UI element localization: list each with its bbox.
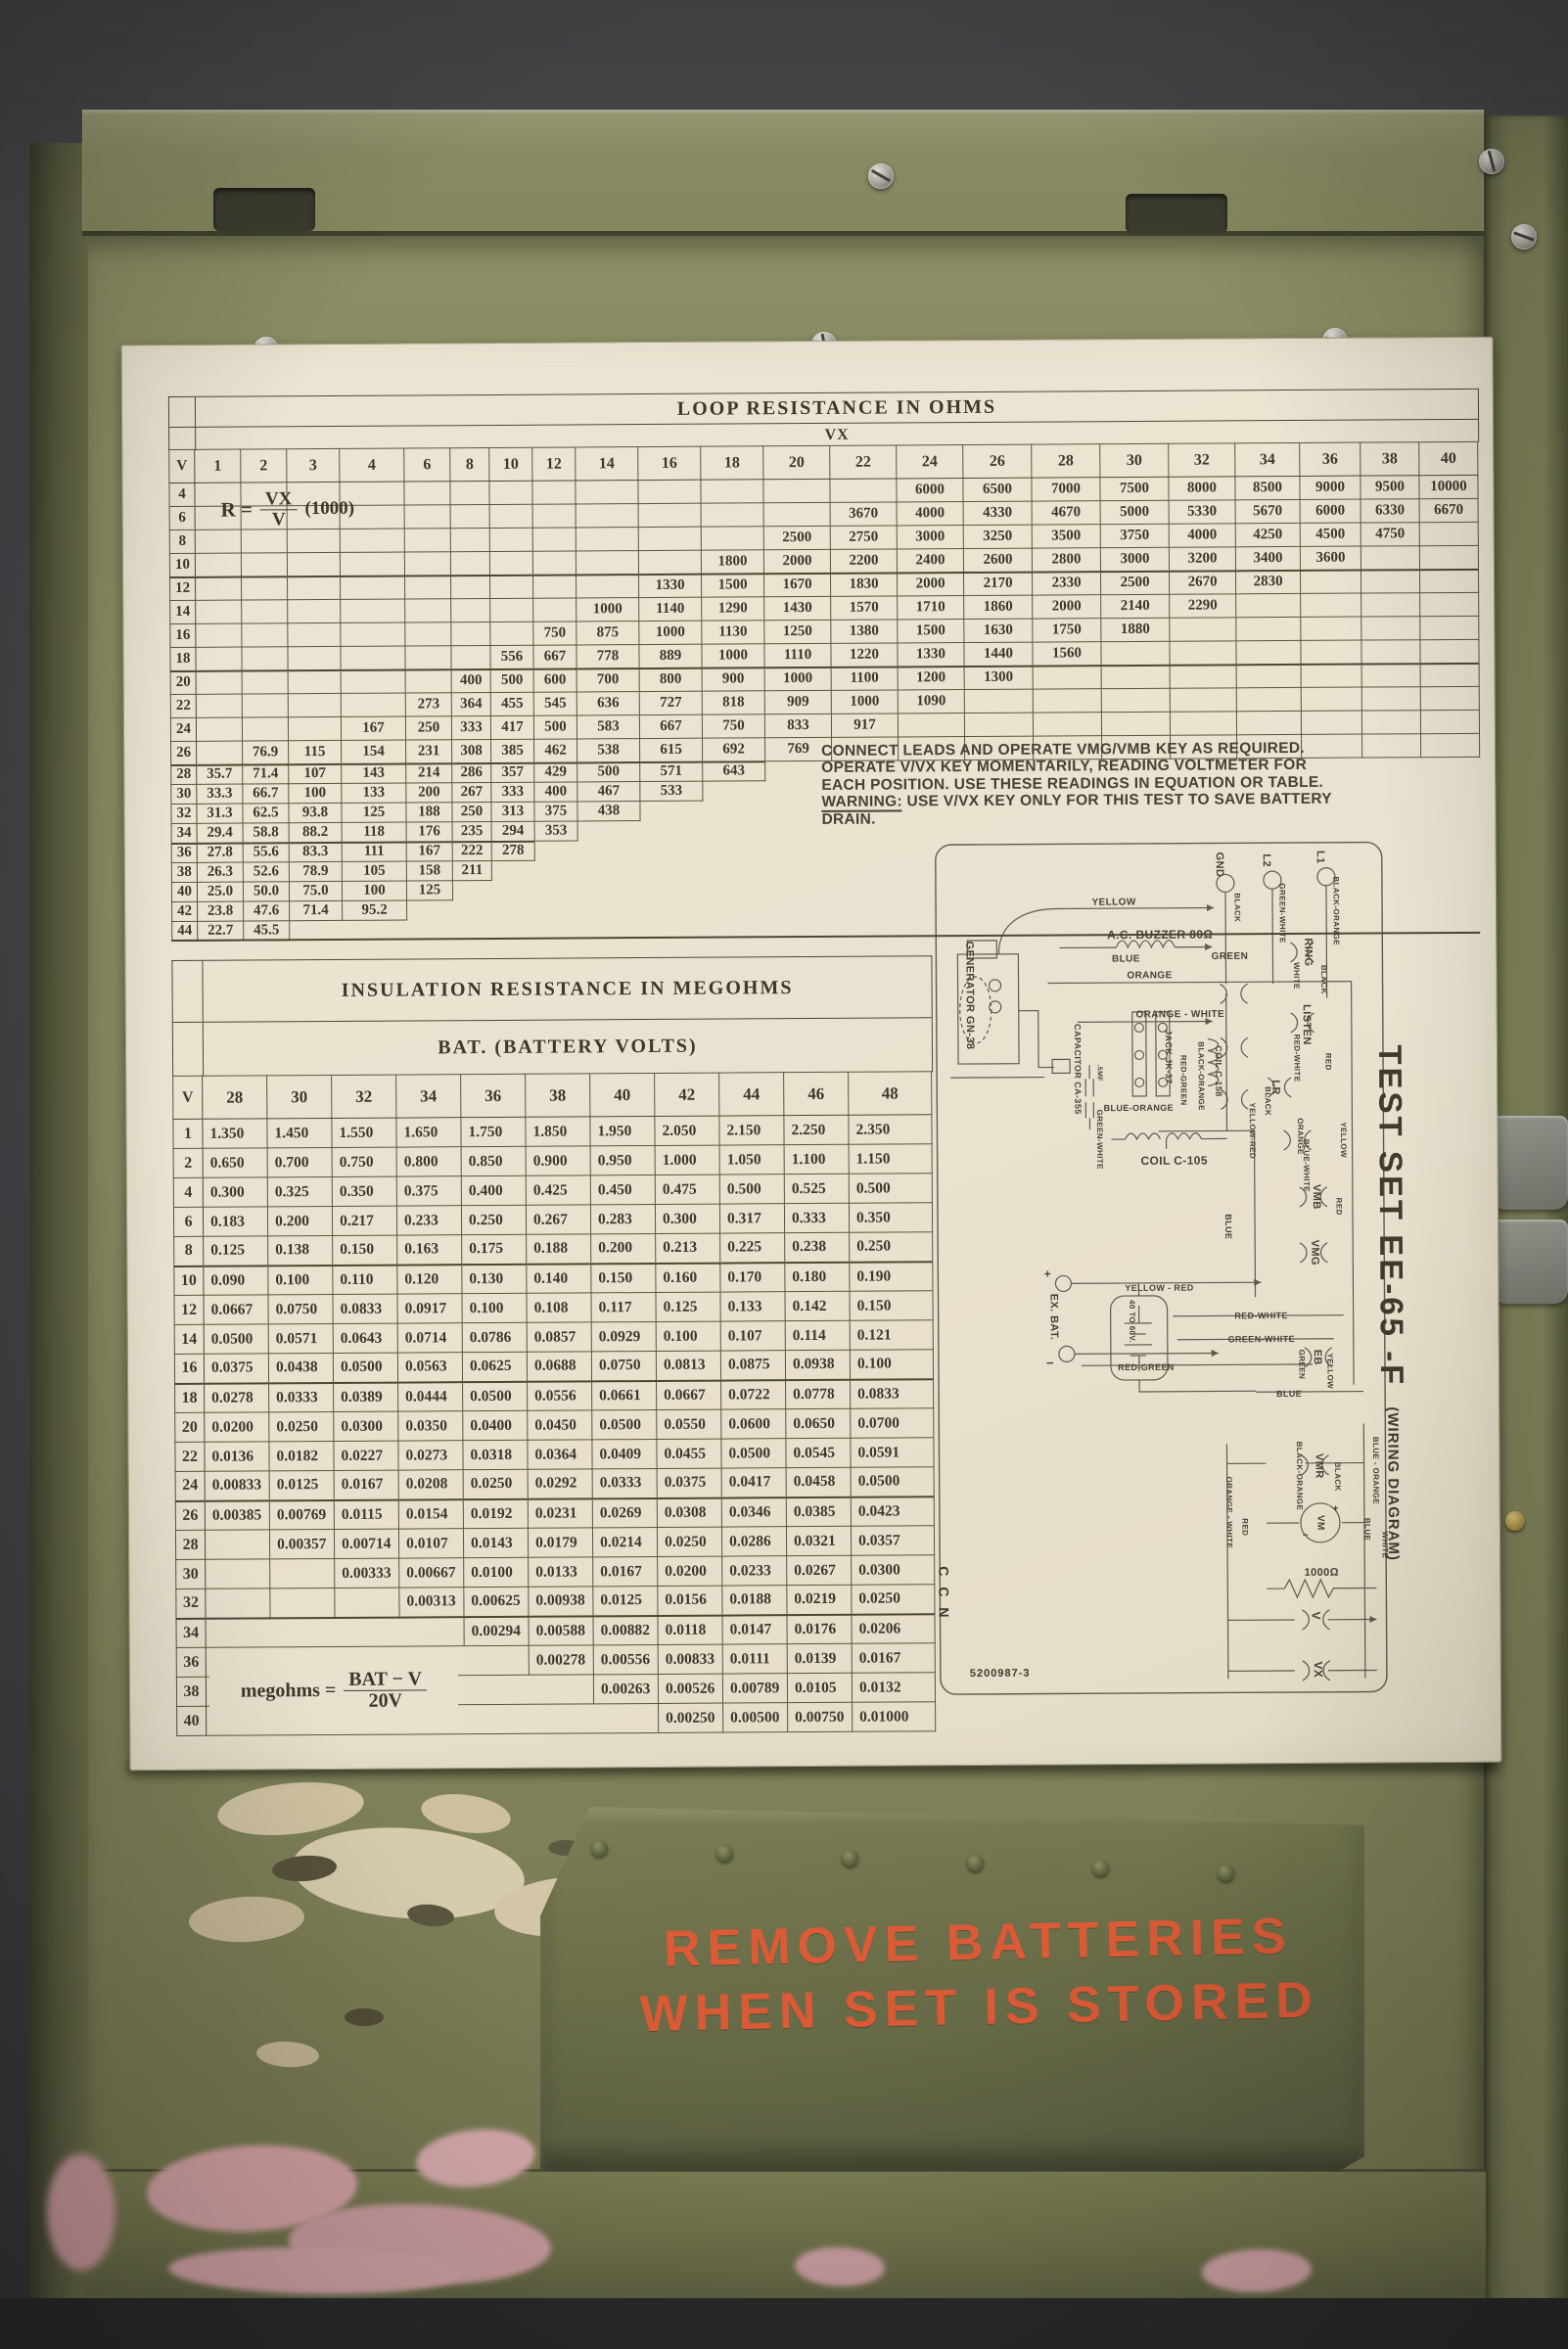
insulation-cell: 0.450 (590, 1174, 655, 1204)
insulation-cell: 0.00833 (658, 1644, 722, 1674)
loop-cell: 76.9 (243, 741, 289, 764)
loop-cell (287, 552, 340, 576)
latch-hardware (1492, 1116, 1568, 1210)
wire-label: JACK JK-37 (1164, 1030, 1174, 1084)
loop-cell (1301, 640, 1361, 664)
wire-label: VMG (1309, 1240, 1320, 1266)
insulation-cell: 0.0208 (398, 1470, 463, 1499)
loop-cell (404, 505, 450, 529)
loop-cell (532, 481, 576, 504)
loop-cell: 313 (491, 802, 534, 821)
case-bottom-shadow (0, 2298, 1568, 2349)
insulation-cell: 0.0563 (397, 1353, 462, 1382)
loop-cell: 22.7 (198, 921, 244, 941)
insulation-cell: 0.0500 (333, 1353, 397, 1382)
loop-cell: 167 (406, 842, 452, 861)
loop-cell (340, 552, 404, 576)
col-header: 3 (287, 448, 340, 482)
row-label: 18 (175, 1383, 205, 1412)
corner-label: V (169, 449, 195, 483)
paint-chip (47, 2153, 115, 2271)
loop-cell: 500 (533, 715, 576, 739)
insulation-title-band: INSULATION RESISTANCE IN MEGOHMS BAT. (B… (171, 955, 933, 1077)
loop-cell (405, 646, 451, 669)
loop-cell (241, 530, 287, 553)
loop-cell: 6670 (1419, 498, 1478, 522)
loop-cell (1170, 618, 1236, 641)
insulation-cell: 0.0250 (657, 1527, 721, 1556)
insulation-table-title: INSULATION RESISTANCE IN MEGOHMS (203, 956, 931, 1022)
insulation-cell: 1.550 (332, 1118, 396, 1147)
loop-cell (1301, 687, 1361, 711)
loop-cell: 900 (702, 668, 764, 691)
wire-label: − (1046, 1356, 1054, 1370)
insulation-cell: 1.450 (267, 1118, 332, 1147)
loop-cell: 214 (406, 763, 452, 783)
loop-cell: 500 (577, 762, 640, 782)
table-row: 340.002940.005880.008820.01180.01470.017… (176, 1614, 935, 1648)
loop-cell (1170, 688, 1236, 712)
rivet (842, 1850, 858, 1866)
insulation-cell (335, 1588, 399, 1617)
loop-cell: 364 (451, 692, 490, 715)
row-label: 30 (171, 784, 197, 804)
loop-cell (763, 479, 830, 502)
insulation-cell: 0.0321 (786, 1526, 851, 1555)
insulation-cell: 2.150 (719, 1116, 784, 1145)
col-header: 2 (241, 449, 287, 483)
loop-cell: 1500 (898, 620, 964, 643)
insulation-cell: 0.0214 (592, 1527, 657, 1556)
insulation-cell: 0.160 (656, 1263, 720, 1292)
table-row: 200.02000.02500.03000.03500.04000.04500.… (175, 1408, 934, 1443)
wire-label: L2 (1261, 853, 1272, 867)
insulation-cell: 0.0125 (593, 1586, 658, 1615)
insulation-cell: 0.00278 (529, 1645, 593, 1675)
loop-cell: 438 (577, 802, 640, 821)
loop-cell: 2290 (1170, 594, 1236, 618)
loop-cell: 1220 (831, 643, 898, 667)
insulation-cell: 0.200 (267, 1206, 332, 1235)
row-label: 12 (174, 1295, 204, 1324)
row-label: 20 (170, 670, 196, 694)
loop-cell (638, 503, 701, 527)
loop-cell (1301, 664, 1361, 687)
loop-cell: 250 (452, 802, 491, 821)
insulation-cell: 0.170 (720, 1263, 785, 1292)
insulation-cell: 0.0308 (657, 1497, 721, 1527)
col-header: 48 (849, 1072, 932, 1116)
loop-cell: 188 (406, 803, 452, 822)
loop-cell (288, 716, 341, 740)
wire-label: VM (1314, 1515, 1325, 1531)
band-spacer (172, 961, 203, 1022)
row-label: 32 (176, 1589, 206, 1618)
insulation-cell: 0.0250 (269, 1411, 334, 1441)
loop-cell: 125 (406, 881, 452, 900)
wire-label: RED (1334, 1198, 1343, 1216)
loop-cell (341, 622, 405, 646)
wire-label: YELLOW (1091, 897, 1135, 907)
col-header: 8 (450, 447, 489, 481)
insulation-cell: 0.0700 (851, 1408, 934, 1439)
insulation-cell: 0.0136 (205, 1442, 269, 1471)
insulation-cell: 0.700 (267, 1147, 332, 1176)
loop-cell (1420, 616, 1479, 639)
insulation-cell: 0.175 (462, 1234, 527, 1264)
insulation-cell: 0.0132 (852, 1673, 935, 1703)
loop-cell: 294 (491, 821, 534, 841)
loop-cell (1420, 592, 1479, 616)
loop-cell (405, 576, 451, 599)
col-header: 14 (576, 447, 638, 481)
loop-cell (830, 479, 897, 502)
row-label: 18 (170, 647, 196, 670)
wire-label: YELLOW-RED (1248, 1102, 1257, 1159)
col-header: 6 (404, 448, 450, 482)
insulation-cell: 0.0278 (205, 1383, 269, 1412)
insulation-cell: 0.163 (397, 1235, 462, 1265)
insulation-cell: 0.217 (332, 1206, 396, 1235)
insulation-cell: 0.0722 (721, 1380, 786, 1409)
insulation-cell: 0.0661 (592, 1380, 657, 1409)
insulation-cell: 0.283 (590, 1204, 655, 1233)
loop-cell: 583 (576, 715, 639, 739)
loop-cell: 115 (289, 740, 342, 763)
loop-cell: 5000 (1100, 500, 1169, 524)
loop-cell: 889 (639, 644, 702, 668)
loop-cell: 4750 (1360, 523, 1419, 546)
loop-cell: 2830 (1235, 570, 1300, 593)
loop-cell: 1090 (898, 690, 964, 714)
insulation-cell: 0.0643 (333, 1323, 397, 1353)
insulation-cell: 0.117 (591, 1292, 656, 1321)
wire-label: BLACK-ORANGE (1196, 1041, 1205, 1111)
insulation-cell: 1.050 (719, 1145, 784, 1174)
loop-cell (404, 552, 450, 576)
loop-cell (1419, 545, 1478, 569)
insulation-cell: 0.0714 (397, 1323, 462, 1353)
loop-cell (288, 599, 341, 622)
insulation-header-row: V2830323436384042444648 (173, 1072, 932, 1120)
loop-cell: 1570 (831, 596, 898, 620)
col-header: 30 (1100, 443, 1169, 477)
insulation-cell: 0.0167 (334, 1470, 398, 1499)
loop-cell: 45.5 (244, 921, 290, 941)
loop-cell: 357 (491, 762, 534, 782)
loop-cell (1033, 666, 1101, 689)
loop-cell (288, 669, 341, 693)
insulation-cell: 0.00833 (205, 1471, 269, 1500)
insulation-cell: 0.100 (656, 1321, 720, 1351)
loop-cell: 533 (640, 781, 703, 801)
loop-cell: 4000 (897, 502, 963, 526)
insulation-cell: 0.0650 (786, 1408, 851, 1438)
col-header: 20 (763, 445, 830, 479)
row-label: 26 (171, 741, 197, 764)
row-label: 24 (170, 717, 196, 741)
loop-cell: 211 (452, 860, 491, 880)
loop-cell: 267 (452, 782, 491, 802)
loop-cell (196, 670, 242, 694)
loop-cell (1420, 710, 1479, 733)
loop-cell: 5330 (1169, 500, 1235, 524)
loop-cell: 1300 (964, 666, 1033, 689)
wire-label: GREEN-WHITE (1277, 883, 1286, 943)
col-header: 18 (701, 446, 763, 480)
loop-cell: 1800 (701, 550, 763, 574)
insulation-cell: 0.300 (655, 1204, 719, 1233)
insulation-cell: 0.0227 (334, 1441, 398, 1470)
table-row: 260.003850.007690.01150.01540.01920.0231… (175, 1497, 934, 1531)
wire-label: + (1044, 1267, 1052, 1281)
loop-cell: 3000 (897, 526, 963, 549)
loop-cell: 6500 (963, 478, 1032, 501)
formula-rhs: (1000) (304, 498, 354, 520)
loop-cell: 167 (341, 716, 405, 740)
wire-label: + (1333, 1503, 1339, 1514)
insulation-cell: 0.100 (850, 1350, 933, 1380)
loop-cell: 1110 (764, 643, 831, 667)
insulation-cell: 0.800 (396, 1147, 461, 1176)
loop-cell: 23.8 (198, 901, 244, 921)
col-header: 34 (1235, 442, 1300, 476)
insulation-cell: 2.050 (655, 1116, 719, 1145)
insulation-cell: 0.350 (332, 1176, 396, 1206)
insulation-cell: 0.0550 (657, 1409, 721, 1439)
loop-cell: 235 (452, 821, 491, 841)
insulation-table-subtitle: BAT. (BATTERY VOLTS) (204, 1018, 932, 1077)
wire-label: WHITE (1292, 962, 1301, 990)
loop-cell: 4330 (963, 501, 1032, 525)
row-label: 12 (170, 576, 196, 600)
loop-cell: 158 (406, 861, 452, 881)
loop-cell (341, 693, 405, 716)
loop-cell: 2670 (1169, 571, 1235, 594)
band-spacer (173, 1023, 204, 1077)
insulation-cell: 0.00769 (269, 1499, 334, 1529)
wire-label: COIL C-105 (1140, 1154, 1208, 1168)
loop-cell: 1670 (764, 573, 831, 596)
insulation-cell: 0.0500 (851, 1467, 934, 1497)
col-header: 36 (1300, 442, 1360, 476)
table-row: 220.01360.01820.02270.02730.03180.03640.… (175, 1438, 934, 1472)
loop-cell: 727 (639, 691, 702, 714)
loop-cell: 429 (534, 762, 577, 782)
insulation-cell: 0.900 (526, 1146, 590, 1175)
col-header: 28 (1032, 444, 1100, 478)
insulation-cell: 0.133 (720, 1292, 785, 1321)
insulation-cell: 0.150 (333, 1235, 397, 1265)
row-label: 14 (174, 1324, 204, 1354)
insulation-cell: 0.0438 (268, 1353, 333, 1382)
loop-cell: 9500 (1360, 476, 1419, 499)
loop-cell: 250 (405, 716, 451, 740)
insulation-cell: 0.0182 (269, 1441, 334, 1470)
insulation-cell: 0.0133 (529, 1557, 593, 1587)
loop-cell: 3400 (1235, 546, 1300, 570)
insulation-cell: 0.0591 (851, 1438, 934, 1468)
row-label: 8 (169, 530, 195, 553)
insulation-cell: 0.138 (268, 1235, 333, 1265)
insulation-cell: 0.0750 (591, 1351, 656, 1380)
loop-cell (532, 504, 576, 528)
row-label: 28 (171, 764, 197, 784)
loop-cell: 2800 (1032, 548, 1100, 572)
loop-cell (1236, 711, 1301, 734)
table-row: 300.003330.006670.01000.01330.01670.0200… (176, 1555, 935, 1589)
loop-cell: 1880 (1101, 618, 1170, 641)
wire-label: RED-GREEN (1179, 1055, 1188, 1106)
wire-label: YELLOW (1339, 1122, 1348, 1158)
insulation-cell: 0.267 (526, 1205, 590, 1234)
loop-cell (638, 550, 701, 574)
loop-cell (1419, 569, 1478, 592)
insulation-cell: 0.0364 (528, 1440, 592, 1469)
insulation-cell: 0.0857 (527, 1322, 591, 1352)
insulation-cell: 0.0147 (722, 1615, 787, 1644)
col-header: 16 (638, 446, 701, 480)
loop-cell: 111 (342, 842, 406, 861)
loop-cell (490, 598, 533, 622)
loop-cell (1361, 687, 1420, 711)
wire-label: BLACK (1233, 893, 1242, 922)
insulation-cell: 0.750 (332, 1147, 396, 1176)
loop-cell (1419, 522, 1478, 545)
loop-cell: 667 (639, 714, 702, 738)
megohms-formula: megohms = BAT − V20V (209, 1648, 459, 1732)
table-row: 60.1830.2000.2170.2330.2500.2670.2830.30… (173, 1203, 932, 1237)
loop-cell: 400 (451, 668, 490, 692)
loop-cell (489, 481, 532, 504)
loop-cell: 8000 (1169, 477, 1235, 500)
loop-cell: 1330 (898, 643, 964, 667)
loop-cell (1361, 664, 1420, 687)
loop-cell: 800 (639, 668, 702, 691)
loop-cell: 778 (576, 645, 639, 668)
row-label: 30 (176, 1559, 206, 1589)
band-spacer (169, 397, 196, 427)
loop-cell (341, 599, 405, 622)
loop-cell: 556 (490, 645, 533, 668)
loop-cell: 100 (342, 881, 406, 900)
loop-cell (489, 528, 532, 551)
loop-cell: 1830 (831, 573, 898, 596)
row-label: 6 (169, 506, 195, 530)
insulation-cell: 1.350 (203, 1119, 267, 1148)
loop-cell (242, 717, 288, 741)
row-label: 34 (171, 823, 197, 843)
loop-cell (451, 645, 490, 668)
insulation-cell: 0.950 (590, 1145, 655, 1174)
col-header: 42 (655, 1073, 719, 1116)
table-row: 280.003570.007140.01070.01430.01790.0214… (175, 1526, 934, 1560)
col-header: 44 (719, 1073, 784, 1116)
case-left-rail (29, 143, 88, 2302)
insulation-cell: 0.00294 (464, 1616, 529, 1645)
loop-cell: 1750 (1033, 619, 1101, 642)
wire-label: GND (1214, 852, 1225, 878)
insulation-cell: 0.0929 (591, 1321, 656, 1351)
loop-cell: 3500 (1032, 525, 1100, 548)
insulation-cell: 0.0188 (722, 1586, 787, 1615)
wire-label: BLACK-ORANGE (1295, 1442, 1304, 1511)
rivet (967, 1855, 984, 1871)
loop-cell (1101, 688, 1170, 712)
insulation-cell: 0.500 (719, 1174, 784, 1204)
loop-cell (1361, 617, 1420, 640)
loop-cell: 231 (406, 740, 452, 763)
insulation-cell: 0.0333 (592, 1468, 657, 1497)
loop-cell (288, 576, 341, 599)
loop-cell: 2000 (1033, 595, 1101, 619)
loop-cell (451, 575, 490, 598)
loop-cell (196, 717, 242, 741)
insulation-cell (270, 1558, 335, 1588)
loop-cell (490, 622, 533, 645)
insulation-cell: 0.0111 (722, 1644, 787, 1674)
insulation-cell: 0.250 (850, 1232, 933, 1263)
wire-label: RING (1302, 938, 1314, 966)
loop-cell: 1630 (964, 619, 1033, 642)
wire-label: GREEN (1212, 951, 1249, 962)
wire-label: BLUE (1362, 1518, 1371, 1541)
wire-label: BLACK (1264, 1086, 1272, 1116)
insulation-cell: 1.950 (590, 1116, 655, 1145)
insulation-cell: 0.0115 (334, 1499, 398, 1529)
loop-cell (196, 694, 242, 717)
insulation-cell: 0.188 (527, 1234, 591, 1264)
insulation-cell: 1.650 (396, 1118, 461, 1147)
loop-cell: 1000 (702, 644, 764, 668)
loop-title-band: LOOP RESISTANCE IN OHMS VX (168, 389, 1479, 450)
loop-cell (288, 693, 341, 716)
insulation-cell (206, 1589, 270, 1618)
wiring-diagram-lines (930, 836, 1436, 1703)
loop-cell: 455 (490, 692, 533, 715)
insulation-cell: 0.0400 (463, 1410, 528, 1440)
loop-cell: 1860 (964, 595, 1033, 619)
loop-cell: 571 (640, 761, 703, 781)
loop-cell (701, 480, 763, 503)
insulation-cell: 0.00588 (529, 1616, 593, 1645)
loop-cell: 375 (534, 802, 577, 821)
wire-label: ORANGE - WHITE (1224, 1477, 1233, 1549)
wire-label: VMR (1314, 1453, 1325, 1479)
loop-cell (1170, 712, 1236, 735)
wire-label: GREEN (1297, 1350, 1306, 1380)
wire-label: GREEN-WHITE (1228, 1334, 1295, 1344)
loop-cell (1170, 665, 1236, 688)
insulation-cell: 0.0273 (398, 1441, 463, 1470)
insulation-cell (270, 1588, 335, 1617)
loop-cell: 2500 (763, 526, 830, 549)
insulation-cell: 0.0667 (657, 1380, 721, 1409)
insulation-cell: 0.100 (268, 1265, 333, 1294)
formula-lhs: megohms = (241, 1679, 337, 1702)
loop-cell: 417 (490, 715, 533, 739)
loop-cell: 2200 (830, 549, 897, 573)
loop-cell (1101, 712, 1170, 735)
loop-cell: 66.7 (243, 784, 289, 804)
insulation-cell: 0.00385 (205, 1500, 269, 1530)
loop-cell (450, 528, 489, 551)
loop-cell: 1290 (702, 597, 764, 621)
part-number: 5200987-3 (970, 1668, 1031, 1680)
loop-cell: 6330 (1360, 499, 1419, 523)
insulation-cell: 0.500 (849, 1174, 932, 1204)
loop-cell: 7000 (1032, 478, 1100, 501)
